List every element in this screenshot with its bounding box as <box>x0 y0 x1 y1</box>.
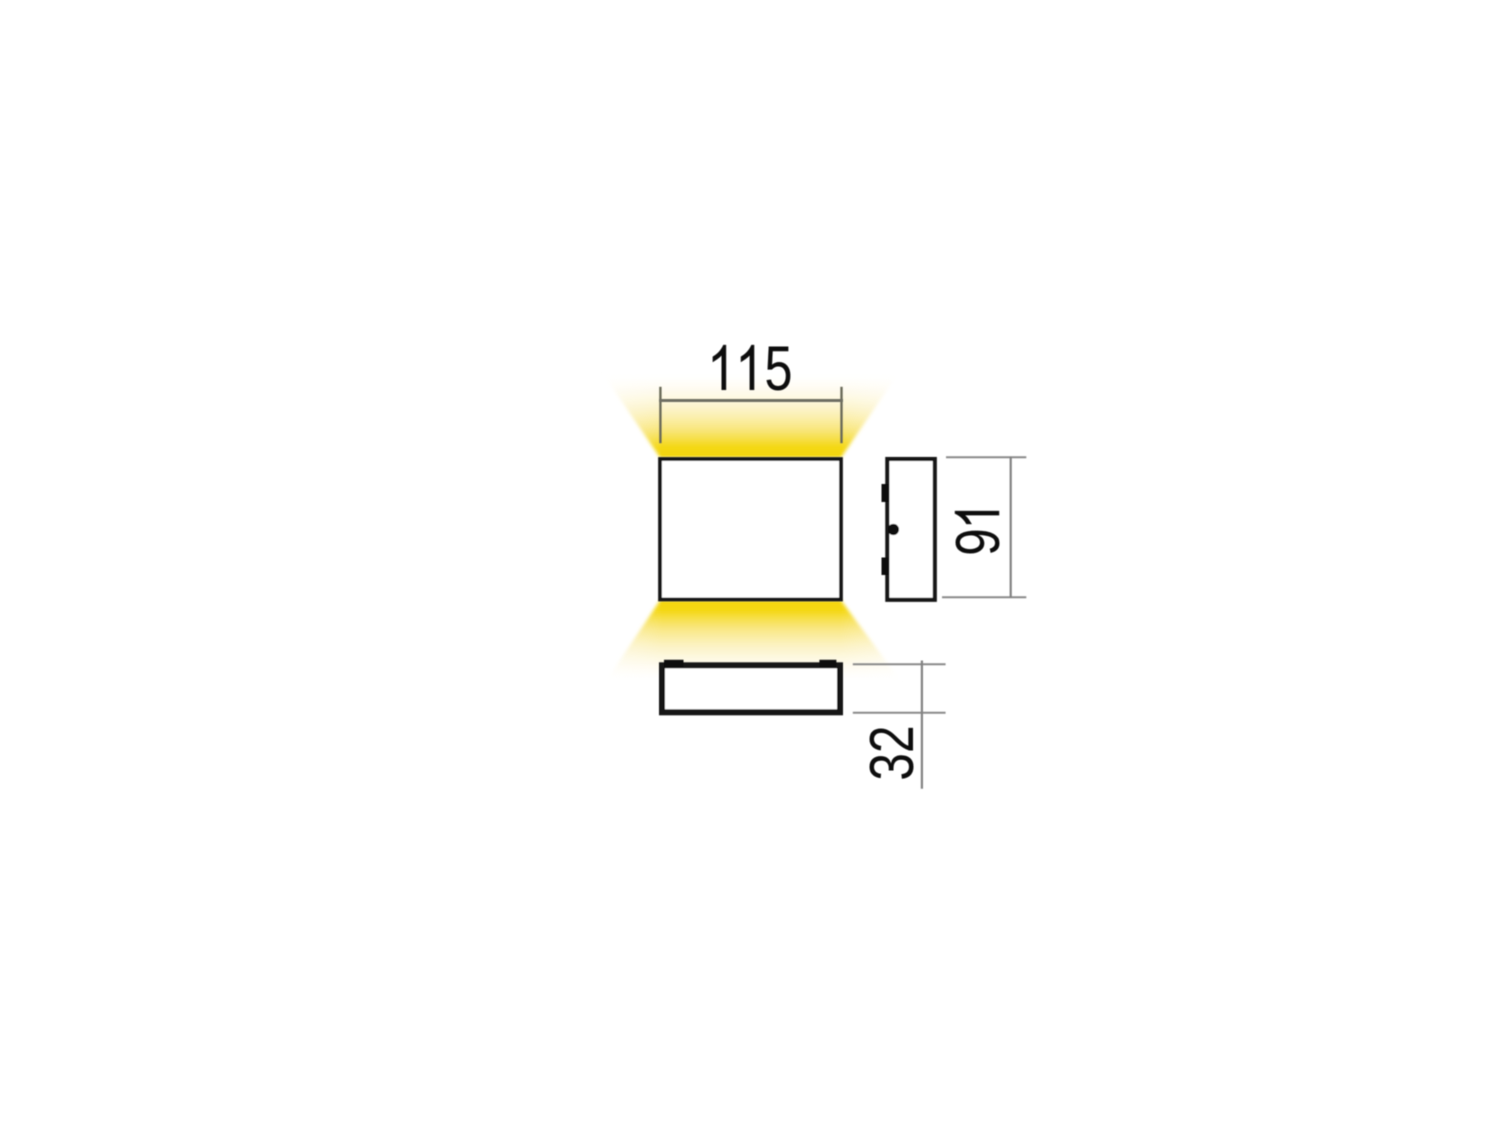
svg-text:9: 9 <box>943 528 1013 556</box>
svg-text:5: 5 <box>765 334 793 405</box>
svg-text:32: 32 <box>857 725 927 780</box>
